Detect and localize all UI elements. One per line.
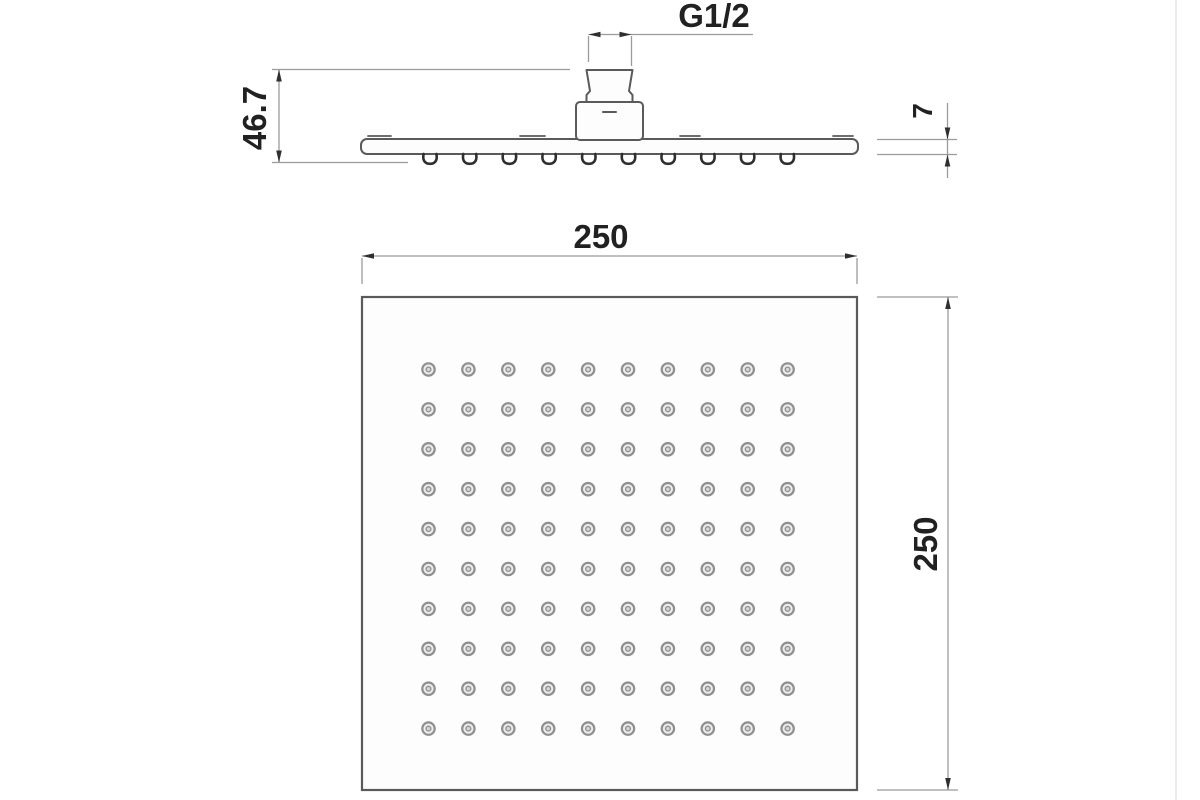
technical-drawing-canvas: G1/2 46.7 7 250 250 (0, 0, 1200, 800)
arrowhead (945, 778, 951, 790)
arrowhead (276, 70, 282, 82)
nozzle-dot (662, 722, 674, 734)
nozzle-dot (662, 403, 674, 415)
depth-dimension-label: 250 (910, 494, 942, 594)
nozzle-dot (702, 643, 714, 655)
nozzle-dot (462, 563, 474, 575)
nozzle-dot (542, 443, 554, 455)
side-view (361, 70, 858, 164)
thickness-dimension-label: 7 (910, 81, 936, 141)
arrowhead (945, 155, 951, 167)
nozzle-dot (502, 563, 514, 575)
nozzle-dot (702, 603, 714, 615)
side-nozzle-hook (463, 154, 476, 164)
side-nozzle-hook (503, 154, 516, 164)
nozzle-dot (781, 483, 793, 495)
nozzle-dot (542, 683, 554, 695)
nozzle-dot (742, 603, 754, 615)
nozzle-dot (502, 363, 514, 375)
arrowhead (276, 151, 282, 163)
nozzle-dot (742, 483, 754, 495)
nozzle-dot (502, 643, 514, 655)
nozzle-dot (582, 683, 594, 695)
nozzle-dot (662, 643, 674, 655)
nozzle-dot (781, 363, 793, 375)
nozzle-dot (542, 603, 554, 615)
nozzle-dot (622, 483, 634, 495)
side-nozzle-row (423, 154, 794, 164)
nozzle-dot (462, 603, 474, 615)
nozzle-dot (422, 523, 434, 535)
nozzle-dot (742, 683, 754, 695)
nozzle-dot (622, 523, 634, 535)
nozzle-dot (781, 683, 793, 695)
nozzle-dot (622, 403, 634, 415)
nozzle-dot (462, 363, 474, 375)
nozzle-dot (582, 403, 594, 415)
arrowhead (620, 32, 632, 38)
nozzle-dot (622, 722, 634, 734)
nozzle-dot (662, 683, 674, 695)
side-nozzle-hook (741, 154, 754, 164)
connector-block (576, 102, 643, 140)
nozzle-dot (781, 643, 793, 655)
nozzle-dot (702, 403, 714, 415)
nozzle-dot (502, 683, 514, 695)
nozzle-dot (742, 403, 754, 415)
nozzle-dot (542, 363, 554, 375)
nozzle-dot (582, 603, 594, 615)
side-nozzle-hook (661, 154, 674, 164)
nozzle-dot (702, 363, 714, 375)
nozzle-dot (582, 363, 594, 375)
nozzle-dot (542, 483, 554, 495)
plate-outline (361, 139, 858, 154)
nozzle-dot (781, 403, 793, 415)
nozzle-dot (662, 563, 674, 575)
side-nozzle-hook (701, 154, 714, 164)
nozzle-dot (422, 483, 434, 495)
nozzle-dot (462, 443, 474, 455)
nozzle-dot (622, 443, 634, 455)
nozzle-dot (582, 483, 594, 495)
side-nozzle-hook (622, 154, 635, 164)
nozzle-dot (542, 523, 554, 535)
nozzle-dot (422, 363, 434, 375)
nozzle-dot (582, 443, 594, 455)
nozzle-dot (542, 403, 554, 415)
nozzle-dot (422, 403, 434, 415)
nozzle-dot (502, 603, 514, 615)
nozzle-dot (422, 683, 434, 695)
nozzle-dot (502, 483, 514, 495)
nozzle-dot (702, 523, 714, 535)
nozzle-dot (542, 563, 554, 575)
nozzle-dot (542, 722, 554, 734)
nozzle-dot (502, 403, 514, 415)
arrowhead (945, 128, 951, 140)
nozzle-dot (662, 523, 674, 535)
nozzle-dot (542, 643, 554, 655)
nozzle-dot (742, 563, 754, 575)
side-nozzle-hook (423, 154, 436, 164)
nozzle-dot (582, 722, 594, 734)
arrowhead (845, 253, 857, 259)
nozzle-dot (662, 483, 674, 495)
plan-view (362, 297, 857, 790)
drawing-linework (0, 0, 1200, 800)
nozzle-dot (622, 363, 634, 375)
nozzle-dot (422, 603, 434, 615)
nozzle-dot (622, 563, 634, 575)
nozzle-dot (781, 563, 793, 575)
nozzle-dot (662, 443, 674, 455)
nozzle-dot (662, 363, 674, 375)
nozzle-dot (702, 683, 714, 695)
nozzle-dot (742, 443, 754, 455)
nozzle-dot (582, 563, 594, 575)
nozzle-dot (781, 722, 793, 734)
nozzle-dot (502, 722, 514, 734)
nozzle-dot (462, 722, 474, 734)
nozzle-dot (582, 643, 594, 655)
nozzle-dot (742, 643, 754, 655)
nozzle-dot (502, 443, 514, 455)
nozzle-dot (462, 643, 474, 655)
nozzle-dot (462, 483, 474, 495)
nozzle-dot (462, 403, 474, 415)
nozzle-dot (781, 443, 793, 455)
dimension-thread (589, 32, 754, 66)
nozzle-dot (662, 603, 674, 615)
nozzle-dot (702, 563, 714, 575)
arrowhead (945, 297, 951, 309)
nozzle-dot (742, 363, 754, 375)
nozzle-dot (422, 563, 434, 575)
side-nozzle-hook (582, 154, 595, 164)
dimension-width (362, 253, 857, 284)
nozzle-dot (781, 603, 793, 615)
nozzle-dot (422, 722, 434, 734)
side-nozzle-hook (781, 154, 794, 164)
nozzle-dot (702, 722, 714, 734)
nozzle-dot (462, 523, 474, 535)
nozzle-dot (502, 523, 514, 535)
nozzle-dot (422, 643, 434, 655)
nozzle-dot (622, 683, 634, 695)
nozzle-dot (422, 443, 434, 455)
thread-pipe (587, 70, 633, 102)
nozzle-dot (742, 722, 754, 734)
nozzle-dot (702, 443, 714, 455)
side-nozzle-hook (542, 154, 555, 164)
width-dimension-label: 250 (551, 221, 651, 253)
nozzle-dot (742, 523, 754, 535)
nozzle-dot (622, 603, 634, 615)
nozzle-dot (622, 643, 634, 655)
nozzle-dot (702, 483, 714, 495)
arrowhead (362, 253, 374, 259)
thread-size-label: G1/2 (662, 0, 766, 32)
arrowhead (589, 32, 601, 38)
nozzle-dot (582, 523, 594, 535)
height-dimension-label: 46.7 (239, 68, 271, 168)
nozzle-dot (781, 523, 793, 535)
nozzle-dot (462, 683, 474, 695)
